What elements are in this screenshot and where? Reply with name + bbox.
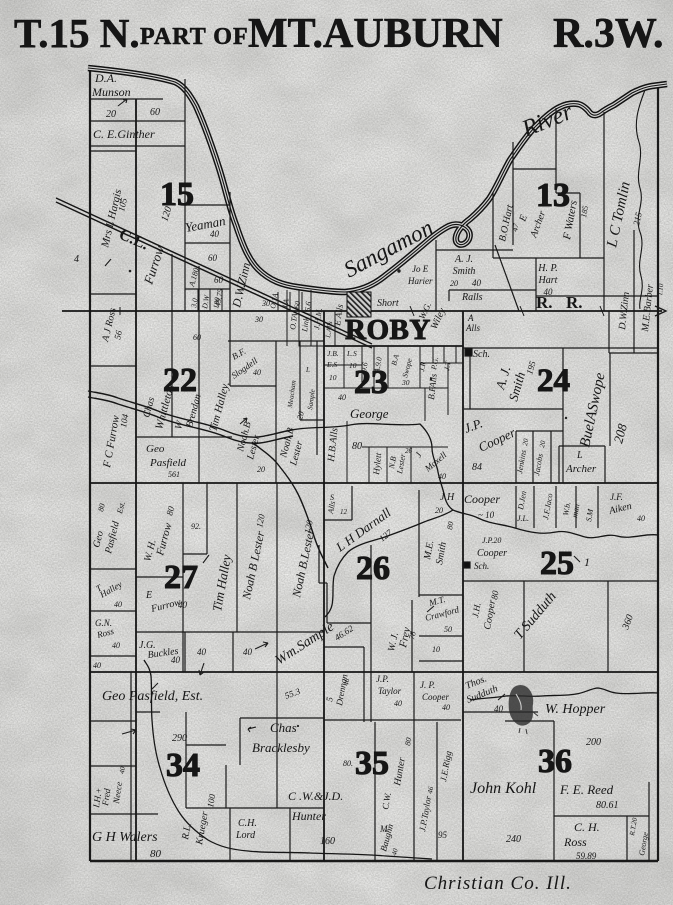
svg-text:40: 40: [114, 600, 122, 609]
svg-text:J.P.20: J.P.20: [482, 536, 501, 545]
svg-text:27: 27: [164, 559, 198, 596]
svg-text:Chas: Chas: [270, 720, 297, 735]
svg-text:Harier: Harier: [407, 276, 433, 286]
svg-text:40: 40: [171, 655, 181, 665]
svg-text:40: 40: [112, 641, 120, 650]
svg-text:J.P.: J.P.: [376, 674, 389, 684]
svg-text:D.A.: D.A.: [94, 71, 117, 85]
svg-text:G H Walers: G H Walers: [92, 830, 158, 845]
svg-text:T.10: T.10: [656, 283, 665, 296]
svg-text:80: 80: [445, 521, 455, 530]
svg-text:Bracklesby: Bracklesby: [252, 740, 310, 755]
svg-text:George: George: [350, 406, 389, 421]
svg-text:J.R: J.R: [417, 361, 428, 373]
svg-text:60: 60: [208, 253, 218, 263]
svg-text:J.F.: J.F.: [610, 492, 623, 502]
svg-text:Hart: Hart: [538, 275, 558, 286]
svg-text:R.: R.: [536, 293, 553, 312]
svg-text:S: S: [330, 493, 334, 502]
svg-text:Hunter: Hunter: [291, 809, 326, 823]
svg-text:ROBY: ROBY: [345, 314, 431, 346]
svg-text:10: 10: [432, 645, 440, 654]
svg-text:Cooper: Cooper: [464, 492, 500, 506]
svg-text:~ 10: ~ 10: [478, 510, 495, 520]
svg-text:80.: 80.: [343, 759, 353, 768]
svg-text:1: 1: [584, 555, 590, 569]
svg-text:E: E: [145, 590, 152, 601]
svg-text:9.6: 9.6: [359, 361, 370, 372]
svg-text:40: 40: [93, 661, 101, 670]
svg-text:F. E. Reed: F. E. Reed: [559, 782, 614, 797]
svg-text:Cooper: Cooper: [477, 548, 507, 559]
svg-text:35: 35: [355, 745, 389, 782]
svg-text:34: 34: [166, 747, 200, 784]
svg-text:60: 60: [150, 107, 160, 118]
svg-text:40: 40: [494, 704, 504, 714]
svg-text:26: 26: [356, 550, 390, 587]
svg-text:R.3W.: R.3W.: [553, 11, 663, 57]
svg-text:80: 80: [403, 737, 413, 746]
svg-text:E.S: E.S: [326, 360, 337, 369]
svg-text:25: 25: [540, 545, 574, 582]
svg-text:40: 40: [197, 647, 207, 657]
svg-text:95: 95: [438, 830, 448, 840]
svg-text:3.0: 3.0: [189, 297, 200, 309]
svg-text:C. H.: C. H.: [574, 820, 600, 834]
svg-text:Taylor: Taylor: [378, 686, 402, 696]
svg-text:40: 40: [243, 647, 253, 657]
svg-text:Archer: Archer: [565, 463, 597, 475]
svg-text:C .W.&J.D.: C .W.&J.D.: [288, 789, 343, 803]
svg-text:10: 10: [349, 361, 357, 370]
svg-text:J.L.: J.L.: [517, 514, 529, 523]
svg-text:40: 40: [637, 514, 645, 523]
svg-text:160: 160: [320, 836, 335, 847]
svg-text:C. E.Ginther: C. E.Ginther: [93, 127, 155, 141]
svg-text:Pasfield: Pasfield: [149, 457, 187, 469]
svg-text:80: 80: [352, 441, 362, 452]
svg-text:Sch.: Sch.: [473, 349, 490, 360]
svg-text:10: 10: [329, 373, 337, 382]
svg-text:Lord: Lord: [235, 830, 256, 841]
svg-text:R.: R.: [566, 293, 583, 312]
svg-text:240: 240: [506, 834, 521, 845]
svg-text:80: 80: [150, 848, 162, 860]
svg-text:561: 561: [168, 470, 180, 479]
svg-text:13: 13: [536, 177, 570, 214]
svg-text:H. P.: H. P.: [537, 263, 558, 274]
svg-text:290: 290: [172, 733, 187, 744]
svg-text:30: 30: [401, 378, 410, 387]
svg-text:Sch.: Sch.: [474, 561, 489, 571]
svg-text:Munson: Munson: [91, 85, 131, 99]
svg-text:40: 40: [178, 600, 188, 610]
svg-text:59.89: 59.89: [576, 851, 597, 861]
svg-text:36: 36: [538, 743, 572, 780]
svg-text:20: 20: [450, 279, 458, 288]
svg-text:40: 40: [442, 703, 450, 712]
svg-text:4: 4: [74, 254, 79, 265]
svg-text:Geo Pasfield, Est.: Geo Pasfield, Est.: [102, 689, 203, 704]
svg-text:J. P.: J. P.: [420, 680, 435, 690]
svg-text:200: 200: [586, 737, 601, 748]
svg-text:60: 60: [214, 275, 224, 285]
svg-text:J.A: J.A: [280, 298, 291, 310]
svg-text:20: 20: [106, 109, 116, 120]
svg-text:Geo: Geo: [146, 443, 165, 455]
svg-text:Cooper: Cooper: [422, 692, 449, 702]
svg-text:Smith: Smith: [453, 266, 476, 277]
svg-text:80.61: 80.61: [596, 800, 619, 811]
svg-text:L: L: [305, 366, 310, 374]
svg-text:40: 40: [338, 393, 346, 402]
svg-text:20: 20: [257, 465, 265, 474]
svg-text:MT.AUBURN: MT.AUBURN: [248, 11, 503, 57]
svg-text:John Kohl: John Kohl: [470, 780, 537, 797]
svg-text:50: 50: [444, 625, 452, 634]
svg-text:A. J.: A. J.: [454, 254, 473, 265]
svg-text:40: 40: [253, 368, 261, 377]
svg-text:W. Hopper: W. Hopper: [545, 702, 606, 717]
svg-text:Ross: Ross: [563, 835, 587, 849]
svg-text:26: 26: [405, 447, 413, 455]
svg-text:C.H.: C.H.: [238, 818, 257, 829]
svg-text:J.H: J.H: [440, 492, 455, 503]
svg-text:L: L: [576, 450, 583, 461]
svg-text:Ralls: Ralls: [461, 292, 483, 303]
svg-text:40: 40: [472, 278, 482, 288]
svg-text:PART OF: PART OF: [140, 24, 249, 50]
svg-text:20: 20: [435, 506, 443, 515]
svg-text:40: 40: [210, 229, 220, 239]
svg-text:Alls: Alls: [465, 323, 480, 333]
svg-text:Christian Co. Ill.: Christian Co. Ill.: [424, 873, 572, 894]
svg-text:30: 30: [254, 315, 263, 324]
svg-text:84: 84: [472, 462, 482, 473]
svg-text:L.S: L.S: [346, 349, 357, 358]
svg-text:24: 24: [537, 363, 570, 399]
svg-text:92.: 92.: [191, 522, 201, 531]
svg-text:12: 12: [340, 508, 348, 516]
svg-text:J.B.: J.B.: [327, 349, 339, 358]
svg-text:40: 40: [394, 699, 402, 708]
svg-text:A: A: [467, 313, 474, 323]
svg-text:60: 60: [193, 333, 201, 342]
svg-text:Short: Short: [377, 298, 399, 309]
svg-text:Jo E: Jo E: [412, 264, 429, 274]
svg-text:T.15 N.: T.15 N.: [14, 10, 140, 56]
